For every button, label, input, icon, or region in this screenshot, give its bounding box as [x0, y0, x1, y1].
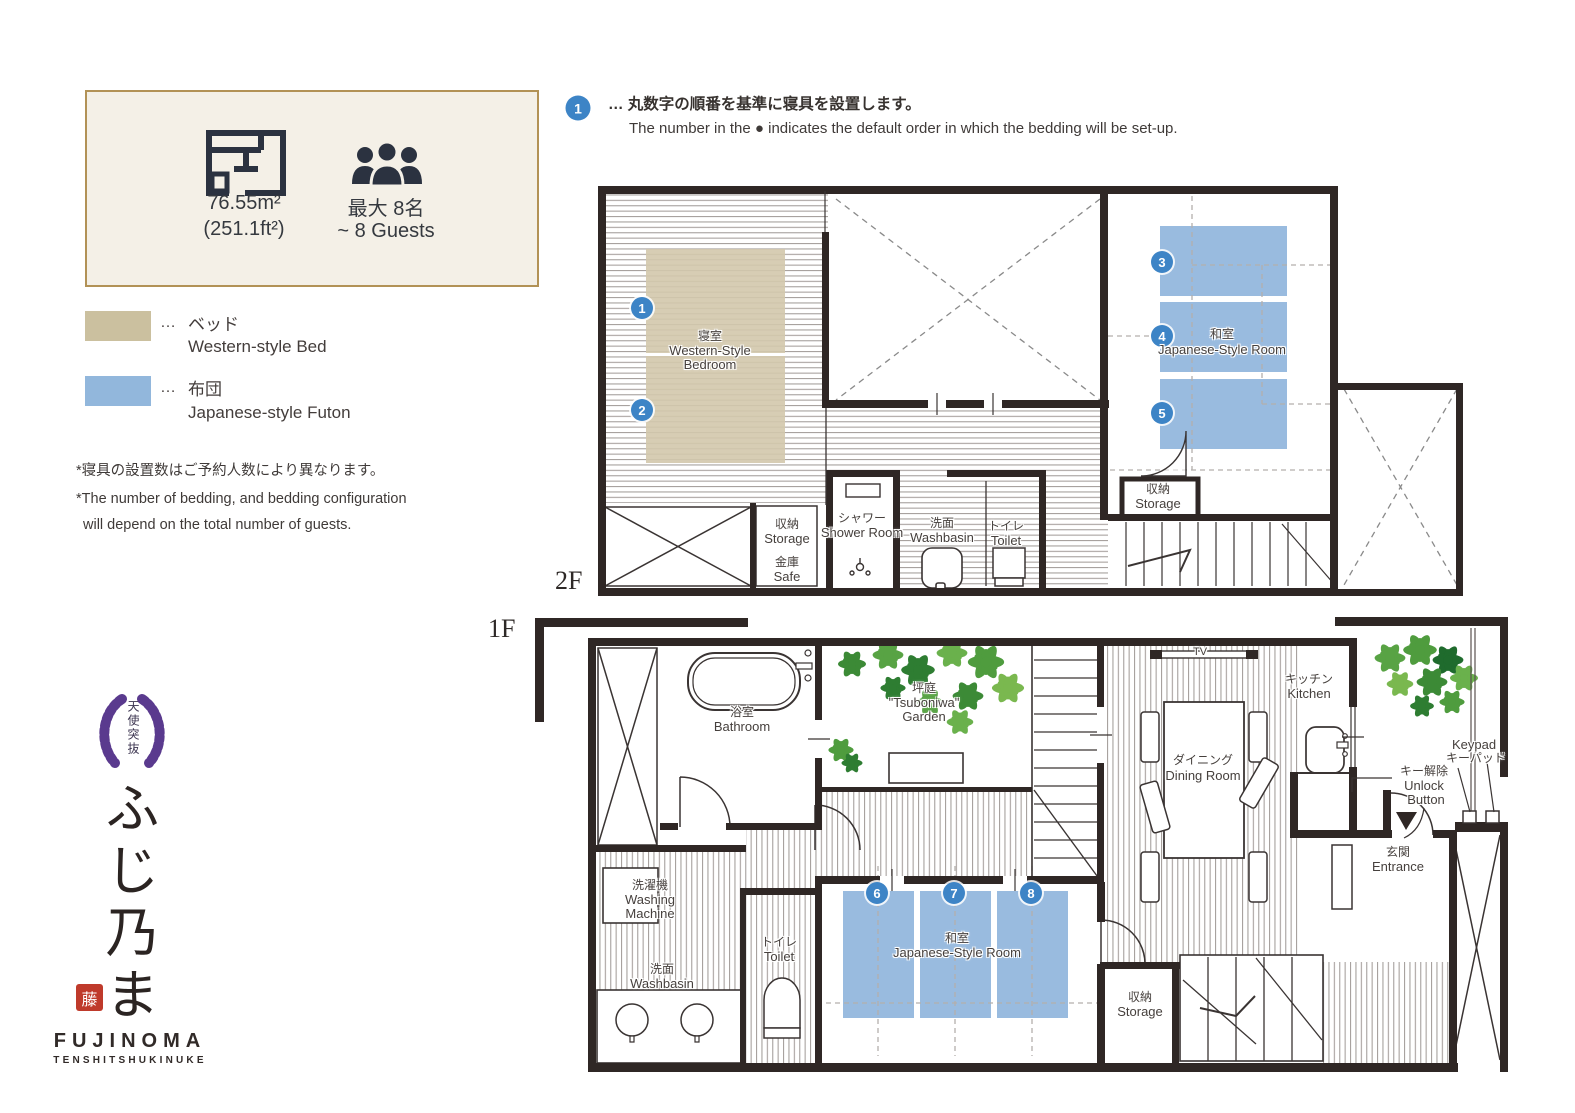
left-shaft-x [598, 648, 657, 845]
label-1f-keypad-jp: キーパッド [1446, 752, 1506, 766]
label-1f-wash-en: Washbasin [630, 977, 694, 992]
annotation-en: The number in the ● indicates the defaul… [629, 120, 1178, 138]
washbasin-fixture-2f [922, 548, 962, 593]
crest-text: 天使突抜 [125, 700, 142, 770]
logo-name: FUJINOMA [54, 1030, 206, 1053]
shoe-cabinet [1332, 845, 1352, 909]
label-1f-wash-jp: 洗面 [650, 963, 674, 977]
kitchen-sink [1306, 727, 1348, 773]
label-2f-jroom-en: Japanese-Style Room [1158, 343, 1286, 358]
area-info-box: 76.55m² (251.1ft²) 最大 8名 ~ 8 Guests [85, 90, 539, 287]
entry-south-floor [1356, 962, 1449, 1063]
label-2f-safe-jp: 金庫 [775, 556, 799, 570]
label-2f-wash-en: Washbasin [910, 531, 974, 546]
label-1f-garden-jp: 坪庭 [912, 682, 936, 696]
floor-plan-2f [540, 180, 1520, 600]
right-shaft-x [1453, 835, 1500, 1060]
label-1f-dining-en: Dining Room [1165, 769, 1240, 784]
label-2f-storage2-en: Storage [1135, 497, 1181, 512]
legend-bed-en: Western-style Bed [188, 337, 327, 357]
legend-futon-en: Japanese-style Futon [188, 403, 351, 423]
label-2f-toilet-en: Toilet [991, 534, 1021, 549]
label-2f-bedroom-jp: 寝室 [698, 330, 722, 344]
label-2f-storage-en: Storage [764, 532, 810, 547]
legend-bed-jp: ベッド [188, 310, 239, 335]
capacity-en: ~ 8 Guests [337, 220, 434, 243]
label-1f-unlock-en2: Button [1407, 793, 1445, 808]
logo-calligraphy: ふじ乃ま [100, 780, 154, 1030]
logo-seal: 藤 [76, 984, 103, 1011]
label-1f-unlock-jp: キー解除 [1400, 765, 1448, 779]
label-1f-jroom-en: Japanese-Style Room [893, 946, 1021, 961]
approach-foliage [1375, 632, 1478, 718]
label-2f-jroom-jp: 和室 [1210, 328, 1234, 342]
label-1f-toilet-jp: トイレ [761, 936, 797, 950]
label-2f-safe-en: Safe [774, 570, 801, 585]
label-1f-jroom-jp: 和室 [945, 932, 969, 946]
legend-futon-swatch [85, 376, 151, 406]
label-1f-storage-jp: 収納 [1128, 991, 1152, 1005]
toilet-fixture-2f [993, 548, 1025, 586]
keypad-units [1463, 811, 1499, 823]
bed-marker-1: 1 [631, 297, 653, 319]
annotation-jp: … 丸数字の順番を基準に寝具を設置します。 [608, 96, 921, 115]
label-1f-bath-en: Bathroom [714, 720, 770, 735]
note-en1: *The number of bedding, and bedding conf… [76, 491, 407, 508]
label-1f-bath-jp: 浴室 [730, 706, 754, 720]
bed-marker-7: 7 [943, 882, 965, 904]
label-2f-shower-jp: シャワー [838, 512, 886, 526]
bed-marker-6: 6 [866, 882, 888, 904]
bed-marker-3: 3 [1151, 251, 1173, 273]
entrance-floor [1298, 838, 1449, 962]
label-2f-shower-en: Shower Room [821, 526, 903, 541]
label-1f-washing-jp: 洗濯機 [632, 879, 668, 893]
floor-tag-1f: 1F [488, 614, 515, 644]
bed-marker-2: 2 [631, 399, 653, 421]
bed-marker-5: 5 [1151, 402, 1173, 424]
toilet-fixture-1f [764, 978, 800, 1038]
label-2f-toilet-jp: トイレ [988, 520, 1024, 534]
garden-planter [889, 753, 963, 783]
capacity-jp: 最大 8名 [348, 192, 425, 221]
stairs-floor [1032, 646, 1103, 882]
label-1f-storage-en: Storage [1117, 1005, 1163, 1020]
label-1f-garden-en2: Garden [902, 710, 945, 725]
legend-bed-swatch [85, 311, 151, 341]
label-2f-bedroom-en2: Bedroom [684, 358, 737, 373]
label-1f-entrance-jp: 玄関 [1386, 846, 1410, 860]
area-ft2: (251.1ft²) [203, 218, 284, 241]
label-1f-toilet-en: Toilet [764, 950, 794, 965]
label-1f-kitchen-en: Kitchen [1287, 687, 1330, 702]
label-1f-washing-en2: Machine [625, 907, 674, 922]
label-1f-tv: TV [1193, 646, 1207, 659]
label-2f-storage2-jp: 収納 [1146, 483, 1170, 497]
legend-futon-jp: 布団 [188, 375, 222, 400]
area-m2: 76.55m² [207, 192, 280, 215]
label-2f-storage-jp: 収納 [775, 518, 799, 532]
floorplan-icon [205, 130, 287, 196]
floorplan-sheet: 76.55m² (251.1ft²) 最大 8名 ~ 8 Guests … ベッ… [0, 0, 1575, 1113]
logo-subtitle: TENSHITSHUKINUKE [53, 1055, 206, 1066]
bathtub [688, 650, 812, 710]
floor-plan-1f [530, 612, 1520, 1082]
fence-line [1471, 628, 1475, 822]
legend-futon-dots: … [160, 379, 176, 397]
mid-corridor-floor [822, 792, 1032, 876]
label-1f-dining-jp: ダイニング [1173, 754, 1233, 768]
legend-bed-dots: … [160, 314, 176, 332]
washbasin-counter [597, 990, 745, 1063]
closet-x [605, 507, 751, 586]
bed-marker-8: 8 [1020, 882, 1042, 904]
note-jp: *寝具の設置数はご予約人数により異なります。 [76, 463, 384, 480]
annotation-marker: 1 [566, 96, 591, 121]
note-en2: will depend on the total number of guest… [83, 517, 351, 534]
unlock-arrow [1396, 812, 1417, 830]
guests-icon [350, 140, 424, 192]
label-1f-entrance-en: Entrance [1372, 860, 1424, 875]
shower-pan [846, 484, 880, 497]
label-1f-kitchen-jp: キッチン [1285, 673, 1333, 687]
label-2f-wash-jp: 洗面 [930, 517, 954, 531]
